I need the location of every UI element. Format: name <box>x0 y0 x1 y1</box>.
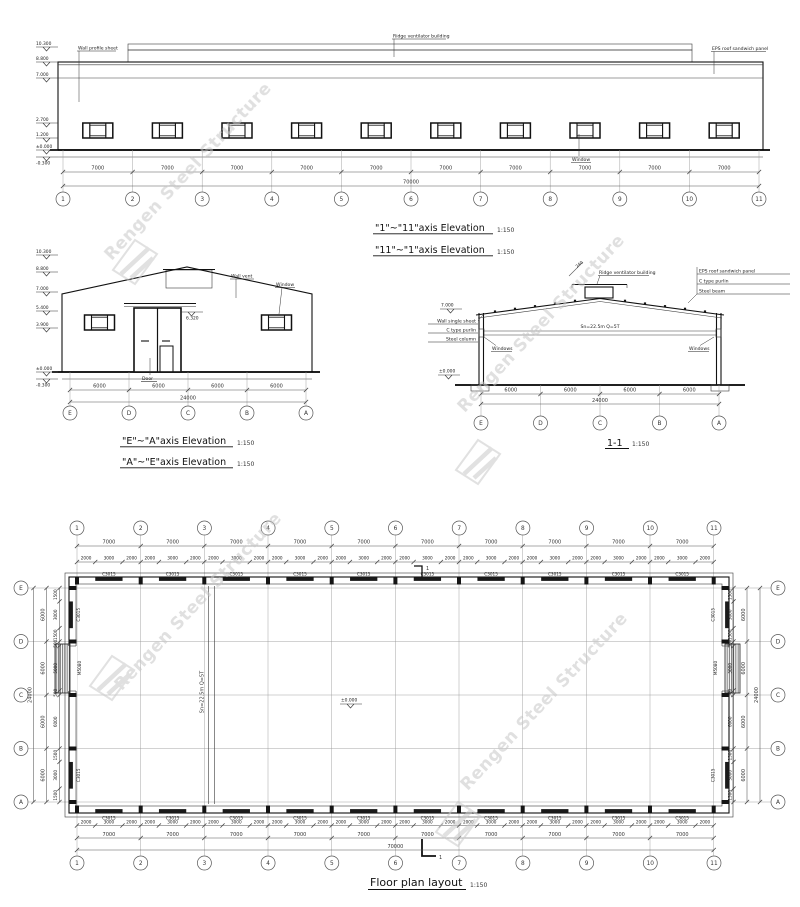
svg-text:3000: 3000 <box>549 556 560 561</box>
svg-text:D: D <box>127 411 132 417</box>
svg-text:3000: 3000 <box>613 556 624 561</box>
svg-text:2000: 2000 <box>700 820 711 825</box>
left-label-stack: Wall single sheet C type purlin Steel co… <box>428 314 484 343</box>
watermark-text: Rengen Steel Structure <box>111 509 286 695</box>
svg-text:7000: 7000 <box>357 540 370 546</box>
svg-text:3000: 3000 <box>167 820 178 825</box>
svg-text:3000: 3000 <box>104 820 115 825</box>
svg-text:2000: 2000 <box>190 820 201 825</box>
svg-text:2000: 2000 <box>700 556 711 561</box>
svg-text:6000: 6000 <box>741 769 747 782</box>
svg-text:2000: 2000 <box>254 556 265 561</box>
svg-text:2000: 2000 <box>126 556 137 561</box>
svg-text:6000: 6000 <box>152 384 165 390</box>
svg-text:C3015: C3015 <box>675 572 689 577</box>
plan-scale: 1:150 <box>470 882 487 889</box>
level-text: 7.000 <box>36 72 49 78</box>
sub-dim: 1500 <box>728 790 733 801</box>
section-cut-number: 1 <box>426 566 429 572</box>
view-titles: "1"~"11"axis Elevation 1:150 "11"~"1"axi… <box>373 223 514 256</box>
door-label: Door <box>142 376 153 382</box>
svg-text:C3015: C3015 <box>293 572 307 577</box>
svg-text:7: 7 <box>479 197 483 203</box>
window <box>85 315 115 330</box>
floor-plan-view: C3015C3015C3015C3015C3015C3015C3015C3015… <box>14 521 785 890</box>
window-label: Window <box>572 157 590 163</box>
svg-text:7000: 7000 <box>485 540 498 546</box>
svg-text:2000: 2000 <box>445 556 456 561</box>
svg-text:6000: 6000 <box>564 388 577 394</box>
svg-text:2000: 2000 <box>399 820 410 825</box>
svg-text:7000: 7000 <box>612 540 625 546</box>
level-text: 1.200 <box>36 132 49 138</box>
steel-column-label: Steel column <box>446 337 476 343</box>
svg-text:1: 1 <box>75 861 79 867</box>
svg-text:7000: 7000 <box>294 832 307 838</box>
svg-text:8: 8 <box>521 861 525 867</box>
svg-text:2: 2 <box>139 526 143 532</box>
svg-text:2000: 2000 <box>336 556 347 561</box>
window <box>83 123 113 138</box>
window <box>361 123 391 138</box>
svg-text:E: E <box>19 586 23 592</box>
window-tag-left: C3015 <box>76 608 81 622</box>
svg-text:9: 9 <box>618 197 622 203</box>
svg-text:3000: 3000 <box>613 820 624 825</box>
svg-text:7000: 7000 <box>548 540 561 546</box>
svg-text:C: C <box>776 693 780 699</box>
svg-text:2000: 2000 <box>208 556 219 561</box>
eps-panel-label: EPS roof sandwich panel <box>712 46 768 52</box>
level-text: 3.900 <box>36 322 49 328</box>
svg-text:9: 9 <box>585 526 589 532</box>
svg-text:6: 6 <box>394 526 398 532</box>
svg-text:3000: 3000 <box>486 556 497 561</box>
svg-text:7000: 7000 <box>166 832 179 838</box>
svg-text:E: E <box>68 411 72 417</box>
plan-level: ±0.000 <box>341 698 357 704</box>
sub-dim: 1500 <box>53 750 58 761</box>
svg-text:C3015: C3015 <box>484 572 498 577</box>
svg-text:6000: 6000 <box>41 662 47 675</box>
total-dim: 24000 <box>28 687 34 703</box>
eps-panel-label: EPS roof sandwich panel <box>699 269 755 275</box>
svg-text:6000: 6000 <box>683 388 696 394</box>
sub-dim: 5000 <box>728 663 733 674</box>
svg-text:2: 2 <box>139 861 143 867</box>
svg-text:2000: 2000 <box>399 556 410 561</box>
svg-text:B: B <box>776 747 780 753</box>
svg-text:5: 5 <box>340 197 344 203</box>
window-tags-top: C3015C3015C3015C3015C3015C3015C3015C3015… <box>102 572 689 577</box>
axis-bubbles-right: EDCBA <box>771 581 785 809</box>
watermark-text: Rengen Steel Structure <box>101 79 276 265</box>
svg-text:E: E <box>479 421 483 427</box>
svg-text:2000: 2000 <box>508 820 519 825</box>
svg-text:4: 4 <box>270 197 274 203</box>
svg-text:2000: 2000 <box>272 556 283 561</box>
svg-text:7000: 7000 <box>230 832 243 838</box>
level-text: 10.300 <box>36 41 52 47</box>
view-titles: Floor plan layout 1:150 <box>368 876 487 890</box>
svg-text:2000: 2000 <box>527 820 538 825</box>
window <box>570 123 600 138</box>
svg-text:7000: 7000 <box>579 166 592 172</box>
total-dim: 24000 <box>180 396 196 402</box>
window-tag-right: C3015 <box>711 768 716 782</box>
svg-text:2000: 2000 <box>572 556 583 561</box>
ground-level: ±0.000 <box>439 369 455 375</box>
ridge-vent-label: Ridge ventilator building <box>393 34 450 40</box>
svg-text:3000: 3000 <box>422 820 433 825</box>
annotations: Wall profile sheet Ridge ventilator buil… <box>77 34 768 164</box>
svg-text:7000: 7000 <box>370 166 383 172</box>
svg-text:2: 2 <box>131 197 135 203</box>
window <box>292 123 322 138</box>
svg-text:7000: 7000 <box>648 166 661 172</box>
svg-text:3000: 3000 <box>486 820 497 825</box>
sub-dim: 6000 <box>728 716 733 727</box>
level-text: 10.300 <box>36 249 52 255</box>
svg-text:3000: 3000 <box>422 556 433 561</box>
level-text: -0.300 <box>36 161 50 167</box>
drawing-canvas: 10.300 8.800 7.000 2.700 1.200 ±0.000 -0… <box>0 0 800 907</box>
svg-text:C3015: C3015 <box>421 572 435 577</box>
svg-text:7000: 7000 <box>91 166 104 172</box>
window-tag-right: C3015 <box>711 608 716 622</box>
sub-dim: 500 <box>53 688 58 696</box>
svg-text:7000: 7000 <box>718 166 731 172</box>
svg-text:2000: 2000 <box>590 820 601 825</box>
axis-bubbles: EDCBA <box>474 416 726 430</box>
svg-text:2000: 2000 <box>144 820 155 825</box>
svg-text:7000: 7000 <box>612 832 625 838</box>
sub-dim: 3000 <box>53 609 58 620</box>
svg-text:3: 3 <box>203 526 207 532</box>
sub-dim: 3000 <box>728 609 733 620</box>
window <box>500 123 530 138</box>
right-label-stack: EPS roof sandwich panel C type purlin St… <box>688 267 790 303</box>
purlin-label: C type purlin <box>446 328 476 334</box>
svg-text:7000: 7000 <box>357 832 370 838</box>
axis-bubbles-left: EDCBA <box>14 581 28 809</box>
svg-text:11: 11 <box>755 197 763 203</box>
svg-text:C3015: C3015 <box>612 572 626 577</box>
view-title-alt: "A"~"E"axis Elevation <box>122 457 226 468</box>
sub-dim: 1500 <box>728 750 733 761</box>
plan-title: Floor plan layout <box>370 876 463 889</box>
svg-text:C: C <box>19 693 23 699</box>
svg-text:7000: 7000 <box>439 166 452 172</box>
svg-text:7000: 7000 <box>161 166 174 172</box>
svg-text:D: D <box>776 640 781 646</box>
svg-text:6000: 6000 <box>41 608 47 621</box>
level-text: 8.800 <box>36 266 49 272</box>
svg-text:3000: 3000 <box>358 556 369 561</box>
window <box>709 123 739 138</box>
view-scale: 1:150 <box>237 440 254 447</box>
svg-text:7000: 7000 <box>676 540 689 546</box>
svg-text:11: 11 <box>710 861 718 867</box>
svg-text:2000: 2000 <box>317 556 328 561</box>
svg-text:7000: 7000 <box>421 832 434 838</box>
svg-text:2000: 2000 <box>81 556 92 561</box>
level-text: -0.300 <box>36 383 50 389</box>
sub-dim: 500 <box>728 688 733 696</box>
svg-text:2000: 2000 <box>508 556 519 561</box>
svg-text:10: 10 <box>647 526 655 532</box>
door-tag-right: M5080 <box>713 661 718 676</box>
svg-text:3000: 3000 <box>295 820 306 825</box>
purlin-label: C type purlin <box>699 279 729 285</box>
svg-text:2000: 2000 <box>590 556 601 561</box>
svg-text:2000: 2000 <box>527 556 538 561</box>
svg-text:11: 11 <box>710 526 718 532</box>
view-title: "E"~"A"axis Elevation <box>122 436 226 447</box>
svg-text:C3015: C3015 <box>548 572 562 577</box>
sliding-door <box>124 304 196 373</box>
sub-dim: 1500 <box>53 589 58 600</box>
door-tag-left: M5080 <box>77 661 82 676</box>
level-text: 8.800 <box>36 56 49 62</box>
ridge-vent-label: Ridge ventilator building <box>599 270 656 276</box>
svg-text:A: A <box>776 800 780 806</box>
svg-text:C: C <box>598 421 602 427</box>
sub-dim: 1500 <box>728 589 733 600</box>
sub-dim: 6000 <box>53 716 58 727</box>
gable-elevation-view: 10.300 8.800 7.000 5.400 3.900 ±0.000 -0… <box>36 249 320 468</box>
svg-text:A: A <box>304 411 308 417</box>
facade-windows <box>83 123 739 138</box>
svg-text:7: 7 <box>457 861 461 867</box>
svg-text:3000: 3000 <box>677 820 688 825</box>
svg-text:3: 3 <box>200 197 204 203</box>
svg-text:C: C <box>186 411 190 417</box>
windows-label-right: Windows <box>689 346 710 352</box>
svg-text:2000: 2000 <box>654 820 665 825</box>
svg-text:7000: 7000 <box>421 540 434 546</box>
svg-text:2000: 2000 <box>190 556 201 561</box>
sub-dim: 1500 <box>728 629 733 640</box>
svg-text:3000: 3000 <box>231 820 242 825</box>
svg-text:3000: 3000 <box>358 820 369 825</box>
svg-text:5: 5 <box>330 526 334 532</box>
roof-top-chord <box>476 299 724 316</box>
canopy-level-text: 6.320 <box>186 316 199 322</box>
crane-label: Sn=22.5m Q=5T <box>580 324 619 330</box>
svg-text:6000: 6000 <box>623 388 636 394</box>
total-dim: 24000 <box>754 687 760 703</box>
view-title-alt: "11"~"1"axis Elevation <box>375 245 485 256</box>
svg-text:1: 1 <box>75 526 79 532</box>
sub-dims: 2000300020002000300020002000300020002000… <box>81 556 711 561</box>
section-title: 1-1 <box>607 438 623 449</box>
svg-text:D: D <box>19 640 24 646</box>
axis-bubbles: EDCBA <box>63 406 313 420</box>
svg-text:7000: 7000 <box>548 832 561 838</box>
svg-text:7000: 7000 <box>166 540 179 546</box>
window <box>640 123 670 138</box>
svg-text:2000: 2000 <box>636 556 647 561</box>
svg-text:A: A <box>19 800 23 806</box>
window <box>262 315 292 330</box>
svg-text:8: 8 <box>521 526 525 532</box>
sub-dim: 500 <box>728 639 733 647</box>
sub-dim: 500 <box>53 639 58 647</box>
eave-level: 7.000 <box>441 303 454 309</box>
svg-text:6000: 6000 <box>741 715 747 728</box>
view-scale: 1:150 <box>237 461 254 468</box>
svg-text:6000: 6000 <box>41 769 47 782</box>
svg-text:B: B <box>245 411 249 417</box>
axis-bubbles-top: 1234567891011 <box>70 521 721 535</box>
svg-text:C3015: C3015 <box>357 572 371 577</box>
steel-column-right <box>717 313 722 385</box>
svg-text:10: 10 <box>686 197 694 203</box>
sub-dim: 1500 <box>53 790 58 801</box>
svg-text:2000: 2000 <box>381 556 392 561</box>
svg-text:2000: 2000 <box>81 820 92 825</box>
svg-text:7000: 7000 <box>231 166 244 172</box>
svg-text:4: 4 <box>266 861 270 867</box>
watermark-text: Rengen Steel Structure <box>457 609 632 795</box>
svg-text:3000: 3000 <box>677 556 688 561</box>
steel-structure-drawing: 10.300 8.800 7.000 2.700 1.200 ±0.000 -0… <box>0 0 800 907</box>
level-text: ±0.000 <box>36 144 52 150</box>
sub-dim: 3000 <box>728 770 733 781</box>
svg-text:7000: 7000 <box>294 540 307 546</box>
clerestory-cap <box>128 44 692 50</box>
level-marks: 10.300 8.800 7.000 2.700 1.200 ±0.000 -0… <box>36 41 58 167</box>
svg-text:E: E <box>776 586 780 592</box>
svg-text:2000: 2000 <box>272 820 283 825</box>
level-text: 7.000 <box>36 286 49 292</box>
view-titles: "E"~"A"axis Elevation 1:150 "A"~"E"axis … <box>120 436 254 468</box>
svg-text:6: 6 <box>394 861 398 867</box>
svg-text:6000: 6000 <box>741 662 747 675</box>
window <box>431 123 461 138</box>
view-scale: 1:150 <box>497 227 514 234</box>
svg-text:7000: 7000 <box>103 540 116 546</box>
row-axis-lines <box>29 588 771 802</box>
svg-text:3000: 3000 <box>295 556 306 561</box>
level-text: 5.400 <box>36 305 49 311</box>
svg-text:7000: 7000 <box>676 832 689 838</box>
svg-text:2000: 2000 <box>463 556 474 561</box>
section-view: 240 Sn=22.5m Q=5T EPS roof sandwich pane… <box>428 260 790 449</box>
svg-text:2000: 2000 <box>254 820 265 825</box>
svg-text:2000: 2000 <box>144 556 155 561</box>
steel-beam-label: Steel beam <box>699 289 726 295</box>
svg-text:D: D <box>538 421 543 427</box>
svg-text:9: 9 <box>585 861 589 867</box>
dimensions: 6000600060006000 24000 EDCBA <box>474 385 726 430</box>
svg-text:3: 3 <box>203 861 207 867</box>
window-label: Window <box>276 282 294 288</box>
level-text: 2.700 <box>36 117 49 123</box>
level-text: ±0.000 <box>36 366 52 372</box>
svg-text:6000: 6000 <box>93 384 106 390</box>
wall-sheet-label: Wall single sheet <box>437 319 476 325</box>
svg-text:6000: 6000 <box>504 388 517 394</box>
svg-text:2000: 2000 <box>636 820 647 825</box>
svg-text:6000: 6000 <box>741 608 747 621</box>
section-scale: 1:150 <box>632 441 649 448</box>
section-cut-number: 1 <box>439 855 442 861</box>
svg-text:7: 7 <box>457 526 461 532</box>
svg-text:3000: 3000 <box>549 820 560 825</box>
svg-text:7000: 7000 <box>485 832 498 838</box>
total-dim: 70000 <box>387 844 403 850</box>
crane-label: Sn=22.5m Q=5T <box>200 670 206 713</box>
svg-text:2000: 2000 <box>208 820 219 825</box>
view-titles: 1-1 1:150 <box>605 438 649 449</box>
sub-dim: 5000 <box>53 663 58 674</box>
sub-dim: 1500 <box>53 629 58 640</box>
clerestory-wall <box>128 50 692 62</box>
sub-dim: 3000 <box>53 770 58 781</box>
svg-text:7000: 7000 <box>300 166 313 172</box>
svg-text:A: A <box>717 421 721 427</box>
watermark-text: Rengen Steel Structure <box>454 231 629 417</box>
svg-text:2000: 2000 <box>381 820 392 825</box>
svg-text:C3015: C3015 <box>102 572 116 577</box>
svg-text:C3015: C3015 <box>166 572 180 577</box>
svg-text:3000: 3000 <box>104 556 115 561</box>
svg-text:7000: 7000 <box>103 832 116 838</box>
svg-text:2000: 2000 <box>317 820 328 825</box>
svg-text:2000: 2000 <box>126 820 137 825</box>
svg-text:6000: 6000 <box>270 384 283 390</box>
ridge-ventilator <box>166 270 212 288</box>
view-title: "1"~"11"axis Elevation <box>375 223 485 234</box>
total-dim: 70000 <box>403 180 419 186</box>
svg-text:7000: 7000 <box>509 166 522 172</box>
wall-vent-label: Wall vent <box>231 274 253 280</box>
svg-text:10: 10 <box>647 861 655 867</box>
svg-text:B: B <box>19 747 23 753</box>
axis-bubbles-bottom: 1234567891011 <box>70 856 721 870</box>
window <box>152 123 182 138</box>
svg-text:6: 6 <box>409 197 413 203</box>
svg-text:3000: 3000 <box>167 556 178 561</box>
wall-sheet-label: Wall profile sheet <box>78 46 118 52</box>
sub-dims: 2000300020002000300020002000300020002000… <box>81 820 711 825</box>
svg-text:2000: 2000 <box>336 820 347 825</box>
view-scale: 1:150 <box>497 249 514 256</box>
svg-text:1: 1 <box>61 197 65 203</box>
total-dim: 24000 <box>592 398 608 404</box>
svg-text:6000: 6000 <box>41 715 47 728</box>
window-tag-left: C3015 <box>76 768 81 782</box>
svg-text:5: 5 <box>330 861 334 867</box>
watermark-logo <box>456 440 500 484</box>
svg-text:8: 8 <box>548 197 552 203</box>
svg-text:B: B <box>658 421 662 427</box>
svg-text:2000: 2000 <box>654 556 665 561</box>
svg-text:2000: 2000 <box>572 820 583 825</box>
svg-text:6000: 6000 <box>211 384 224 390</box>
